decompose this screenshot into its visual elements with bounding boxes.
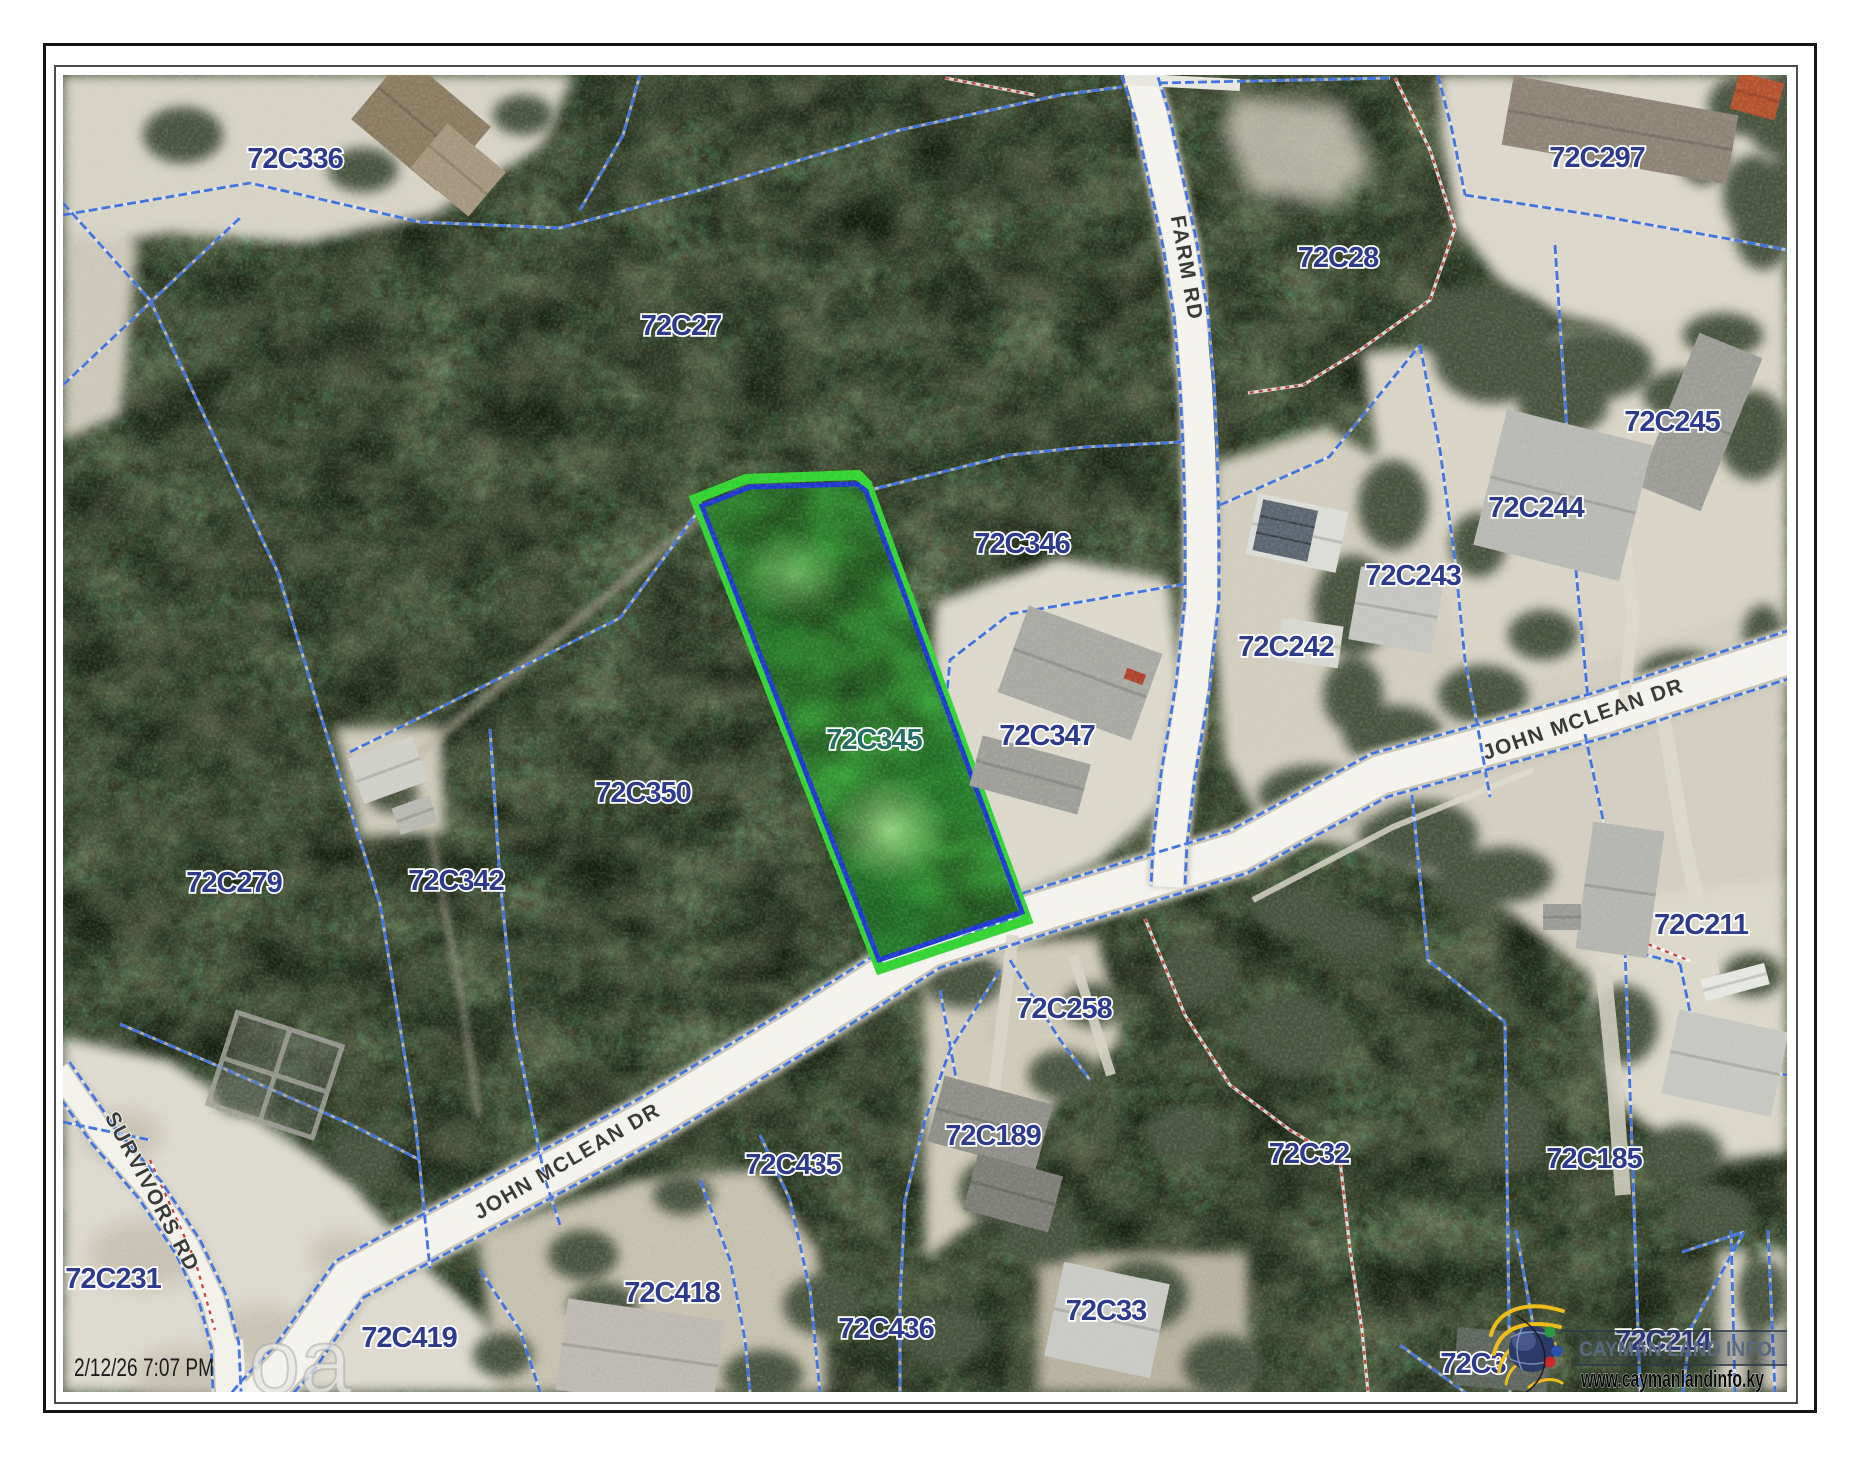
svg-text:72C342: 72C342 bbox=[408, 865, 504, 897]
svg-text:72C245: 72C245 bbox=[1624, 406, 1720, 438]
svg-text:72C419: 72C419 bbox=[361, 1322, 457, 1354]
svg-text:72C27: 72C27 bbox=[641, 310, 721, 342]
svg-text:72C258: 72C258 bbox=[1016, 993, 1112, 1025]
svg-text:www.caymanlandinfo.ky: www.caymanlandinfo.ky bbox=[1580, 1366, 1764, 1392]
svg-text:72C346: 72C346 bbox=[974, 528, 1070, 560]
svg-text:72C28: 72C28 bbox=[1298, 242, 1379, 274]
svg-text:72C435: 72C435 bbox=[745, 1149, 841, 1181]
svg-text:72C436: 72C436 bbox=[838, 1313, 934, 1345]
svg-text:72C32: 72C32 bbox=[1269, 1138, 1349, 1170]
svg-text:72C185: 72C185 bbox=[1546, 1143, 1642, 1175]
svg-text:2/12/26 7:07 PM: 2/12/26 7:07 PM bbox=[74, 1354, 214, 1382]
svg-text:72C33: 72C33 bbox=[1066, 1295, 1147, 1327]
svg-text:72C243: 72C243 bbox=[1365, 560, 1461, 592]
svg-text:72C244: 72C244 bbox=[1488, 492, 1584, 524]
svg-text:72C347: 72C347 bbox=[999, 720, 1095, 752]
svg-text:72C350: 72C350 bbox=[595, 777, 691, 809]
svg-text:72C418: 72C418 bbox=[624, 1277, 720, 1309]
svg-text:72C231: 72C231 bbox=[65, 1263, 161, 1295]
svg-text:72C336: 72C336 bbox=[247, 143, 343, 175]
svg-text:72C189: 72C189 bbox=[945, 1120, 1041, 1152]
svg-text:72C279: 72C279 bbox=[186, 867, 282, 899]
svg-text:72C345: 72C345 bbox=[826, 724, 922, 756]
svg-text:CAYMAN LAND INFO: CAYMAN LAND INFO bbox=[1579, 1338, 1772, 1361]
svg-text:oa: oa bbox=[249, 1311, 352, 1392]
svg-text:72C297: 72C297 bbox=[1549, 142, 1645, 174]
svg-text:72C3: 72C3 bbox=[1440, 1348, 1506, 1380]
svg-text:72C211: 72C211 bbox=[1654, 909, 1749, 941]
svg-text:72C242: 72C242 bbox=[1238, 631, 1334, 663]
